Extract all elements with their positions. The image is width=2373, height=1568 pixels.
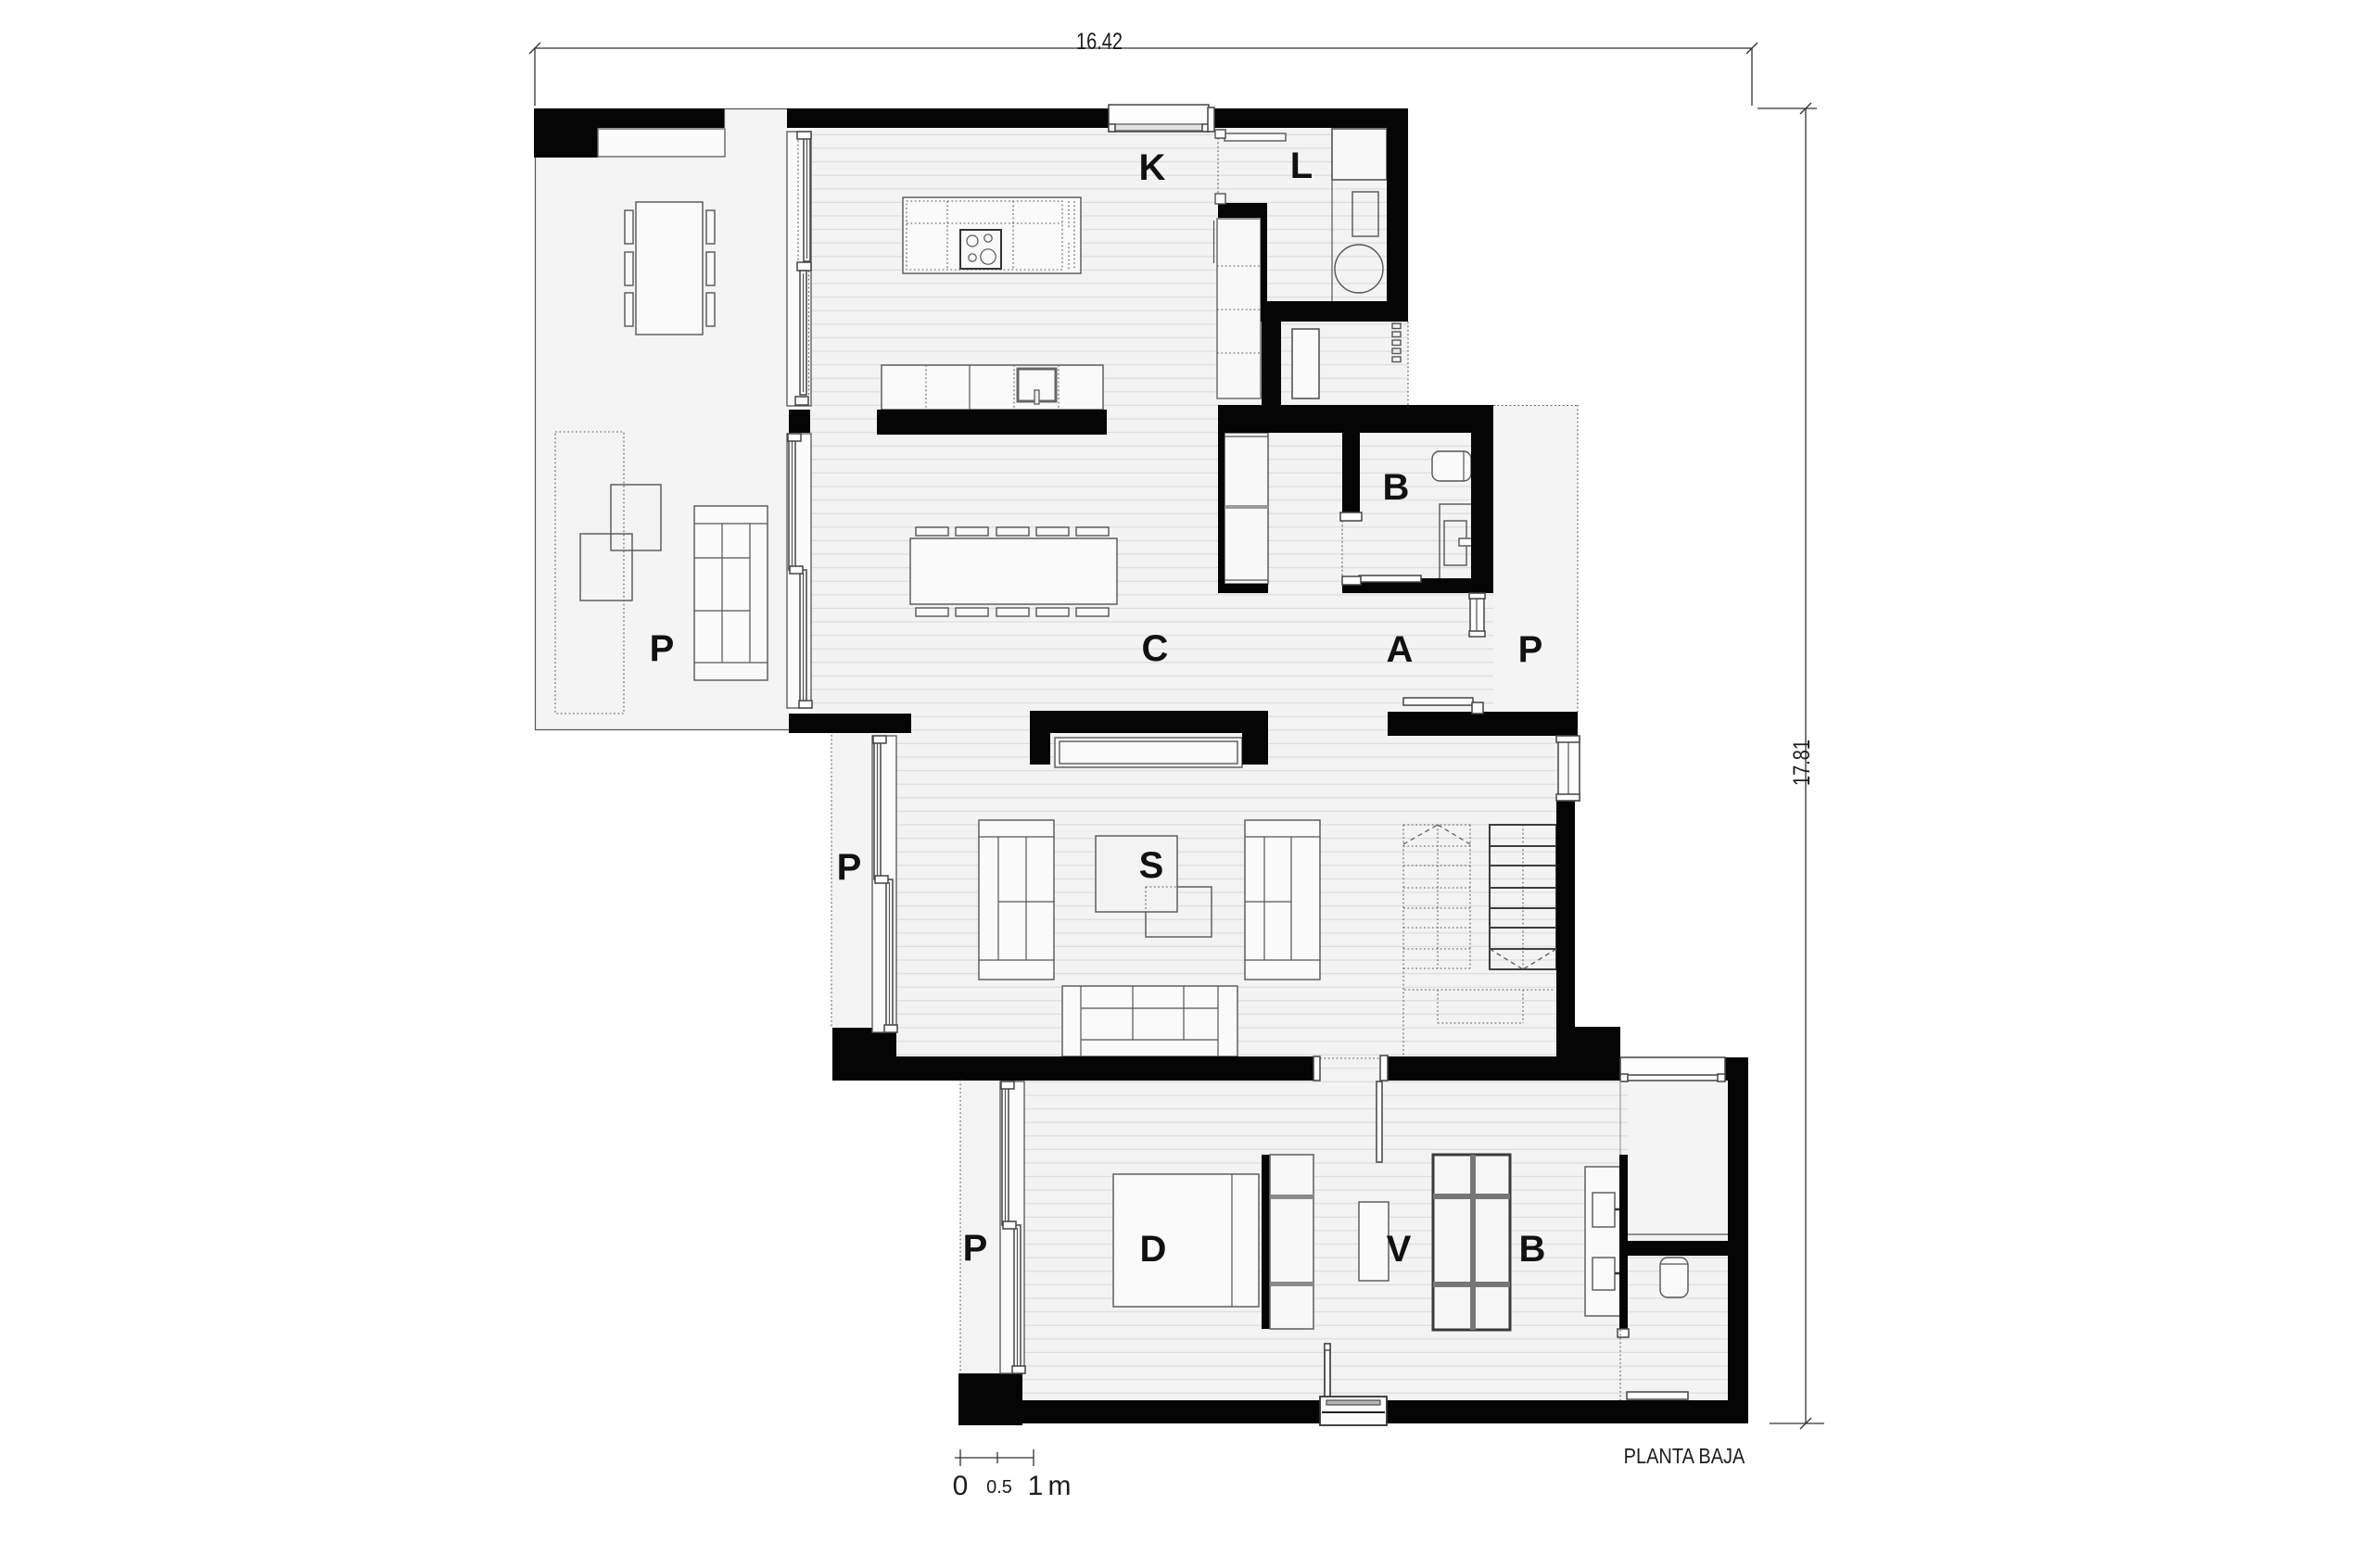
svg-text:B: B	[1519, 1229, 1546, 1270]
svg-text:K: K	[1139, 147, 1166, 188]
svg-text:A: A	[1387, 629, 1414, 670]
svg-text:S: S	[1139, 845, 1164, 886]
svg-text:B: B	[1383, 467, 1410, 508]
svg-text:P: P	[837, 847, 862, 888]
svg-text:PLANTA BAJA: PLANTA BAJA	[1624, 1444, 1745, 1469]
svg-text:D: D	[1140, 1229, 1167, 1270]
svg-text:C: C	[1142, 628, 1169, 669]
svg-text:17.81: 17.81	[1789, 740, 1815, 786]
svg-text:0: 0	[953, 1471, 969, 1501]
svg-text:P: P	[1518, 629, 1543, 670]
svg-text:1: 1	[1028, 1471, 1044, 1501]
svg-text:L: L	[1290, 145, 1313, 186]
svg-text:0.5: 0.5	[986, 1477, 1012, 1498]
svg-text:m: m	[1048, 1471, 1072, 1501]
svg-text:16.42: 16.42	[1076, 29, 1123, 55]
svg-text:V: V	[1387, 1229, 1412, 1270]
svg-text:P: P	[963, 1228, 988, 1269]
svg-text:P: P	[650, 628, 675, 669]
